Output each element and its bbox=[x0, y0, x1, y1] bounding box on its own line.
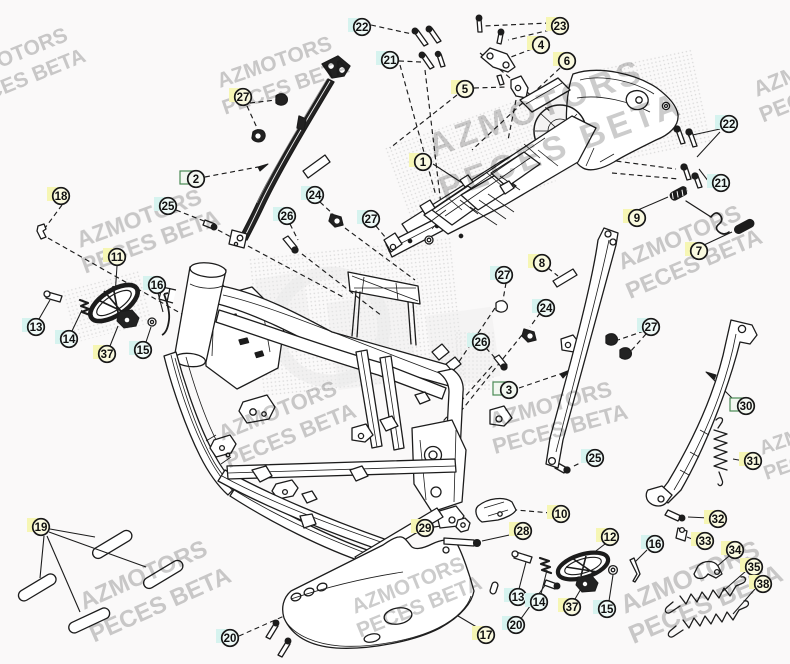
svg-text:28: 28 bbox=[517, 526, 530, 538]
svg-text:5: 5 bbox=[462, 84, 469, 96]
svg-text:29: 29 bbox=[419, 523, 432, 535]
svg-text:27: 27 bbox=[645, 322, 658, 334]
svg-text:15: 15 bbox=[601, 604, 614, 616]
svg-text:37: 37 bbox=[566, 602, 579, 614]
svg-text:18: 18 bbox=[55, 191, 68, 203]
svg-text:30: 30 bbox=[740, 401, 753, 413]
svg-text:22: 22 bbox=[356, 22, 369, 34]
svg-text:26: 26 bbox=[281, 211, 294, 223]
svg-text:8: 8 bbox=[539, 258, 546, 270]
svg-text:20: 20 bbox=[224, 633, 237, 645]
svg-text:27: 27 bbox=[237, 92, 250, 104]
svg-text:10: 10 bbox=[555, 509, 568, 521]
svg-text:33: 33 bbox=[699, 536, 712, 548]
svg-text:1: 1 bbox=[420, 157, 427, 169]
svg-text:13: 13 bbox=[30, 322, 43, 334]
svg-text:27: 27 bbox=[498, 270, 511, 282]
svg-text:37: 37 bbox=[101, 349, 114, 361]
svg-text:15: 15 bbox=[137, 345, 150, 357]
svg-text:25: 25 bbox=[589, 453, 602, 465]
svg-text:35: 35 bbox=[748, 562, 761, 574]
svg-text:34: 34 bbox=[729, 545, 742, 557]
svg-text:9: 9 bbox=[634, 213, 640, 225]
svg-text:14: 14 bbox=[533, 597, 546, 609]
svg-text:11: 11 bbox=[111, 252, 124, 264]
svg-text:2: 2 bbox=[193, 174, 199, 186]
svg-text:22: 22 bbox=[723, 119, 736, 131]
svg-text:12: 12 bbox=[604, 532, 617, 544]
svg-text:17: 17 bbox=[480, 630, 493, 642]
svg-text:6: 6 bbox=[564, 56, 570, 68]
svg-text:20: 20 bbox=[510, 620, 523, 632]
svg-text:13: 13 bbox=[512, 592, 525, 604]
svg-text:26: 26 bbox=[475, 337, 488, 349]
svg-text:4: 4 bbox=[538, 40, 545, 52]
svg-text:3: 3 bbox=[506, 385, 512, 397]
svg-text:7: 7 bbox=[696, 246, 702, 258]
svg-text:16: 16 bbox=[649, 539, 662, 551]
svg-text:38: 38 bbox=[757, 579, 770, 591]
svg-text:14: 14 bbox=[63, 334, 76, 346]
svg-text:23: 23 bbox=[554, 21, 567, 33]
svg-text:16: 16 bbox=[151, 280, 164, 292]
svg-text:24: 24 bbox=[309, 190, 322, 202]
svg-text:31: 31 bbox=[747, 456, 760, 468]
svg-text:19: 19 bbox=[35, 522, 48, 534]
svg-text:21: 21 bbox=[715, 178, 728, 190]
svg-text:27: 27 bbox=[365, 214, 378, 226]
svg-text:25: 25 bbox=[162, 201, 175, 213]
svg-text:21: 21 bbox=[384, 55, 397, 67]
svg-text:24: 24 bbox=[540, 303, 553, 315]
svg-text:32: 32 bbox=[712, 514, 725, 526]
